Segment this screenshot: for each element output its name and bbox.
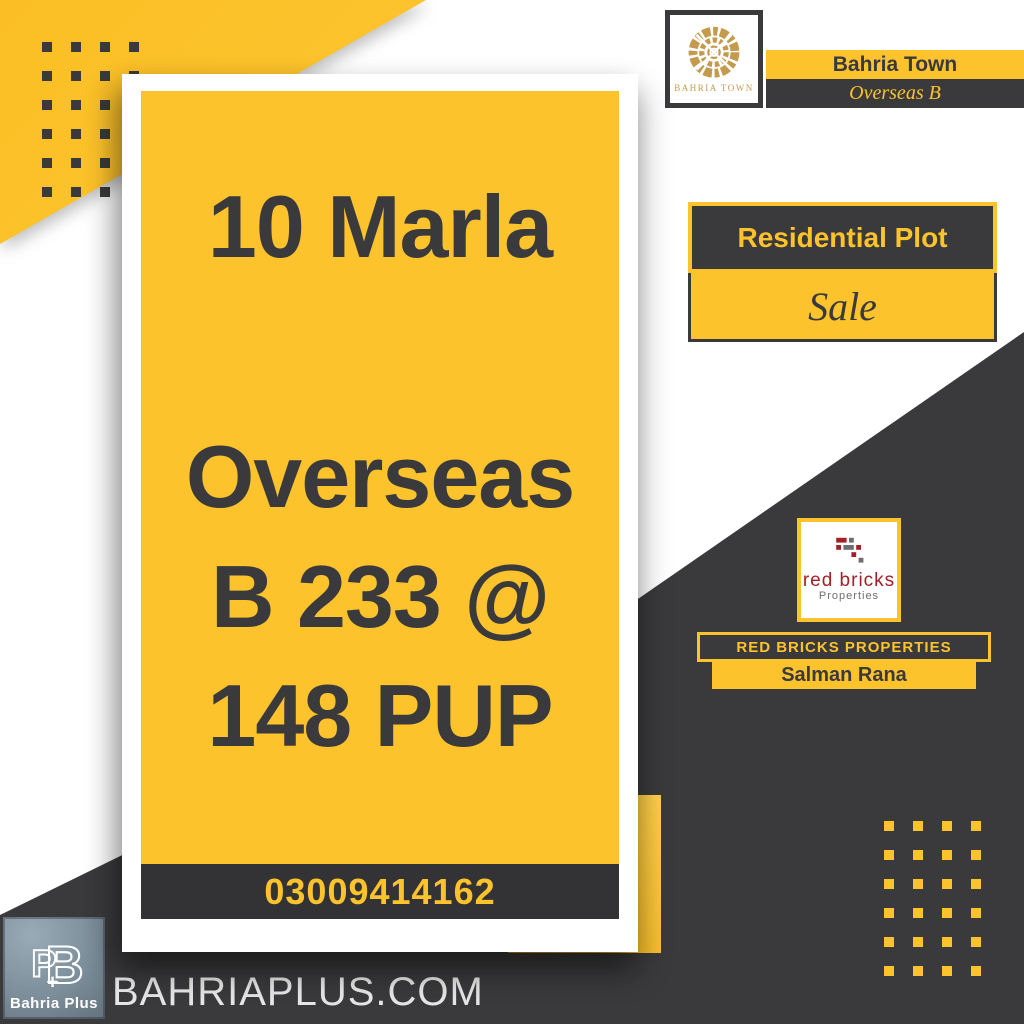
bahria-town-emblem-icon: [686, 26, 742, 82]
plot-location-text: Overseas B 233 @ 148 PUP: [186, 417, 574, 776]
website-text: BAHRIAPLUS.COM: [112, 970, 484, 1015]
listing-card: 10 Marla Overseas B 233 @ 148 PUP 030094…: [122, 74, 638, 952]
town-name: Bahria Town: [766, 50, 1024, 79]
listing-card-body: 10 Marla Overseas B 233 @ 148 PUP: [141, 91, 619, 864]
red-bricks-logo-title: red bricks: [803, 571, 895, 590]
bahria-town-logo-box: BAHRIA TOWN: [665, 10, 763, 108]
listing-status: Sale: [688, 273, 997, 342]
bahria-plus-label: Bahria Plus: [10, 995, 98, 1012]
agent-name-bar: Salman Rana: [712, 662, 976, 689]
sector-name: Overseas B: [766, 79, 1024, 108]
bahria-town-logo-text: BAHRIA TOWN: [674, 83, 753, 93]
location-line-1: Overseas: [186, 417, 574, 537]
listing-badge: Residential Plot Sale: [688, 202, 997, 342]
bahria-plus-monogram-icon: B P +: [21, 933, 87, 995]
red-bricks-logo-subtitle: Properties: [819, 590, 879, 602]
agency-name-bar: RED BRICKS PROPERTIES: [697, 632, 991, 662]
bahria-plus-logo-box: B P + Bahria Plus: [3, 917, 105, 1019]
flyer-canvas: 10 Marla Overseas B 233 @ 148 PUP 030094…: [0, 0, 1024, 1024]
plot-size-text: 10 Marla: [208, 183, 552, 271]
svg-text:+: +: [46, 971, 58, 994]
dot-grid-bottom-right: [884, 821, 981, 976]
phone-number: 03009414162: [264, 871, 495, 913]
listing-type: Residential Plot: [688, 202, 997, 273]
location-line-2: B 233 @: [186, 537, 574, 657]
location-line-3: 148 PUP: [186, 656, 574, 776]
red-bricks-icon: [825, 537, 873, 569]
phone-number-bar: 03009414162: [141, 864, 619, 919]
red-bricks-logo-box: red bricks Properties: [797, 518, 901, 622]
bahria-town-bar: Bahria Town Overseas B: [766, 50, 1024, 108]
